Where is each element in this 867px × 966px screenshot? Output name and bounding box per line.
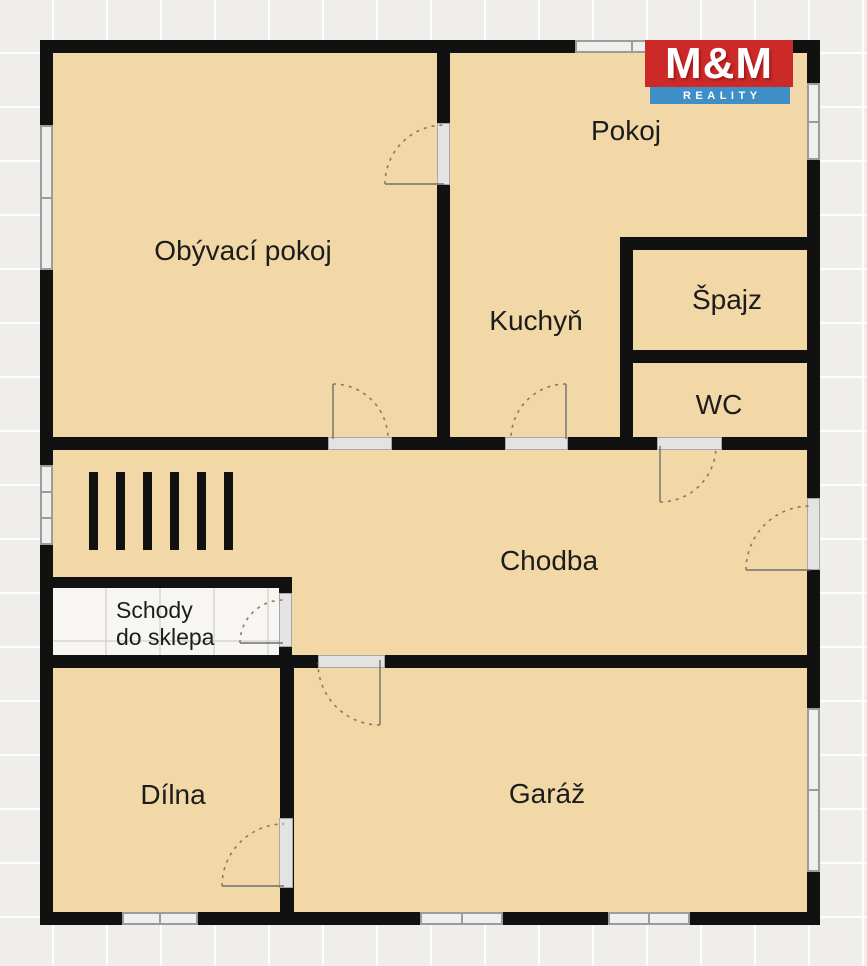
window-pane	[422, 914, 461, 923]
window-pane	[809, 121, 818, 159]
wall-pantry-wc-divider	[620, 350, 820, 363]
floor-plan: Obývací pokoj Pokoj Kuchyň Špajz WC Chod…	[0, 0, 867, 966]
window-pane	[809, 85, 818, 121]
threshold-garage-door	[318, 655, 385, 668]
window-hall-left	[40, 465, 53, 545]
label-workshop: Dílna	[140, 779, 205, 811]
window-pane	[42, 467, 51, 491]
label-living-room: Obývací pokoj	[154, 235, 331, 267]
window-workshop-bottom	[122, 912, 198, 925]
window-pane	[42, 127, 51, 197]
agency-logo: M&M REALITY	[645, 40, 795, 104]
window-pane	[461, 914, 502, 923]
label-stairs-to-basement: Schody do sklepa	[116, 597, 214, 651]
threshold-workshop-door	[279, 818, 293, 888]
window-pane	[809, 710, 818, 789]
threshold-entry-door	[807, 498, 820, 570]
window-pane	[610, 914, 648, 923]
window-pane	[42, 517, 51, 543]
label-stairs-line2: do sklepa	[116, 624, 214, 651]
label-room: Pokoj	[591, 115, 661, 147]
window-pane	[577, 42, 631, 51]
window-pane	[809, 789, 818, 870]
stair-bar	[224, 472, 233, 550]
window-room-right	[807, 83, 820, 160]
label-wc: WC	[696, 389, 743, 421]
wall-living-room-divider	[437, 40, 450, 450]
stair-bar	[170, 472, 179, 550]
wall-hall-bottom	[40, 655, 820, 668]
threshold-living-door	[328, 437, 392, 450]
stair-bar	[143, 472, 152, 550]
wall-pantry-top	[620, 237, 820, 250]
stair-bar	[197, 472, 206, 550]
window-pane	[42, 491, 51, 517]
stair-bar	[89, 472, 98, 550]
window-pane	[159, 914, 196, 923]
window-garage-right	[807, 708, 820, 872]
threshold-stairs-door	[279, 593, 292, 647]
label-kitchen: Kuchyň	[489, 305, 582, 337]
window-pane	[648, 914, 688, 923]
label-stairs-line1: Schody	[116, 597, 214, 624]
window-pane	[42, 197, 51, 269]
window-garage-bottom-right	[608, 912, 690, 925]
window-garage-bottom-left	[420, 912, 503, 925]
label-pantry: Špajz	[692, 284, 762, 316]
label-hallway: Chodba	[500, 545, 598, 577]
window-living-left	[40, 125, 53, 270]
agency-logo-mark: M&M	[645, 40, 793, 87]
threshold-kitchen-door	[505, 437, 568, 450]
window-pane	[124, 914, 159, 923]
threshold-room-door	[437, 123, 450, 185]
wall-pantry-left	[620, 237, 633, 450]
stair-bar	[116, 472, 125, 550]
agency-logo-tagline: REALITY	[650, 87, 790, 104]
wall-stairs-top	[40, 577, 292, 588]
threshold-wc-door	[657, 437, 722, 450]
label-garage: Garáž	[509, 778, 585, 810]
